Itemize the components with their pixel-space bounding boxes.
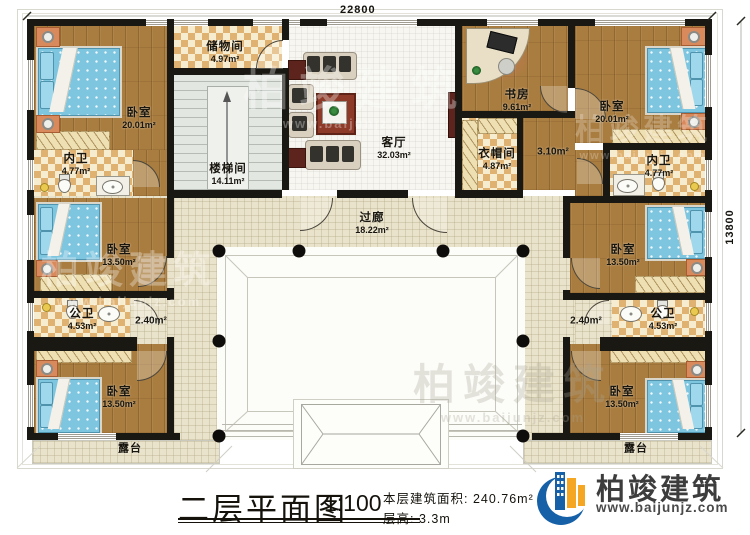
column (437, 245, 450, 258)
room-label-hall240-l: 2.40m² (135, 315, 167, 327)
room-label-stairwell: 楼梯间14.11m² (209, 163, 247, 187)
column (213, 335, 226, 348)
column (517, 245, 530, 258)
room-label-bath-tr: 内卫4.77m² (645, 155, 674, 179)
floor-area-total: 本层建筑面积: 240.76m² (383, 488, 534, 507)
room-label-bath-pr: 公卫4.53m² (649, 308, 678, 332)
room-label-cloakroom: 衣帽间4.87m² (478, 148, 516, 172)
column (517, 430, 530, 443)
column (517, 335, 530, 348)
room-label-bedroom-ml: 卧室13.50m² (102, 244, 136, 268)
room-label-bedroom-br: 卧室13.50m² (605, 386, 639, 410)
room-label-terrace-r: 露台 (624, 443, 648, 456)
room-label-bedroom-mr: 卧室13.50m² (606, 244, 640, 268)
room-label-gallery: 过廊18.22m² (355, 212, 389, 236)
dimension-top: 22800 (340, 4, 376, 16)
column (293, 245, 306, 258)
logo-url: www.baijunjz.com (596, 500, 729, 515)
room-label-bedroom-tr: 卧室20.01m² (595, 101, 629, 125)
column (213, 245, 226, 258)
room-label-bath-pl: 公卫4.53m² (68, 308, 97, 332)
room-label-bath-tl: 内卫4.77m² (62, 153, 91, 177)
scale-label: 1:100 (324, 490, 382, 517)
floor-plan-canvas: 柏竣建筑 www.baijunjz.com 柏竣建筑 www.baijunjz.… (0, 0, 750, 535)
room-label-bedroom-tl: 卧室20.01m² (122, 107, 156, 131)
room-label-hall310: 3.10m² (537, 146, 569, 158)
column (213, 430, 226, 443)
room-label-bedroom-bl: 卧室13.50m² (102, 386, 136, 410)
room-label-storage: 储物间4.97m² (206, 41, 244, 65)
dimension-right: 13800 (724, 204, 738, 250)
logo-icon (536, 466, 592, 530)
room-label-study: 书房9.61m² (503, 89, 532, 113)
room-label-hall240-r: 2.40m² (570, 315, 602, 327)
room-label-living: 客厅32.03m² (377, 137, 411, 161)
room-label-terrace-l: 露台 (118, 443, 142, 456)
floor-height: 层高: 3.3m (383, 508, 451, 527)
